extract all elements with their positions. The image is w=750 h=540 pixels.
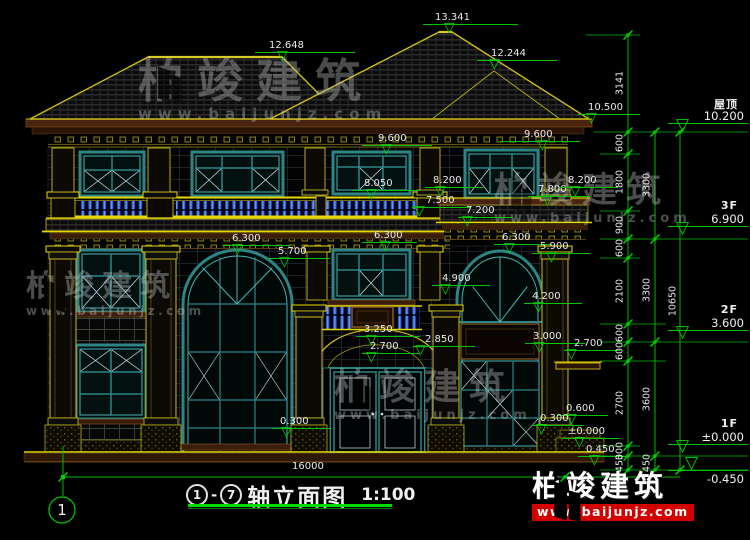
right-bay-cornice bbox=[436, 198, 592, 240]
axis-start-bubble: 1 bbox=[186, 484, 208, 506]
dim-value: 600 bbox=[615, 342, 626, 360]
axis-end-bubble: 7 bbox=[220, 484, 242, 506]
dim-value: 600 bbox=[615, 134, 626, 152]
dim-value: 1800 bbox=[615, 170, 626, 194]
main-eave bbox=[26, 119, 592, 147]
axis-bubble-number: 1 bbox=[55, 501, 69, 519]
dim-value: 3300 bbox=[642, 278, 653, 302]
brand-logo: 柏竣建筑 www.baijunjz.com bbox=[532, 472, 694, 521]
floor-mark-3f: 3F6.900▽ bbox=[668, 199, 748, 241]
balcony-canopy bbox=[42, 218, 462, 249]
dim-value: 600 bbox=[615, 239, 626, 257]
dim-value: 3600 bbox=[642, 387, 653, 411]
dim-value: 2100 bbox=[615, 279, 626, 303]
title-underline bbox=[188, 504, 392, 507]
elevation-drawing bbox=[0, 0, 750, 540]
dim-value: 10650 bbox=[668, 286, 679, 316]
floor-mark-roof: 屋顶10.200▽ bbox=[668, 96, 748, 138]
dim-value: 2700 bbox=[615, 391, 626, 415]
title-dash: - bbox=[211, 486, 217, 504]
overall-width-dimension: 16000 bbox=[292, 461, 324, 472]
brand-logo-icon bbox=[532, 472, 594, 534]
level-triangle-icon: ▽ bbox=[676, 117, 689, 133]
dim-value: 3141 bbox=[615, 71, 626, 95]
floor-mark-1f: 1F±0.000▽ bbox=[668, 417, 748, 459]
dim-value: 900 bbox=[615, 216, 626, 234]
cad-elevation-screenshot: 柏竣建筑 www.baijunjz.com 柏竣建筑 www.baijunjz.… bbox=[0, 0, 750, 540]
dim-value: 600 bbox=[615, 324, 626, 342]
dim-value: 3300 bbox=[642, 173, 653, 197]
title-scale: 1:100 bbox=[361, 485, 415, 505]
roof bbox=[30, 32, 589, 119]
title-underline-2 bbox=[188, 508, 392, 509]
floor-mark-2f: 2F3.600▽ bbox=[668, 303, 748, 345]
